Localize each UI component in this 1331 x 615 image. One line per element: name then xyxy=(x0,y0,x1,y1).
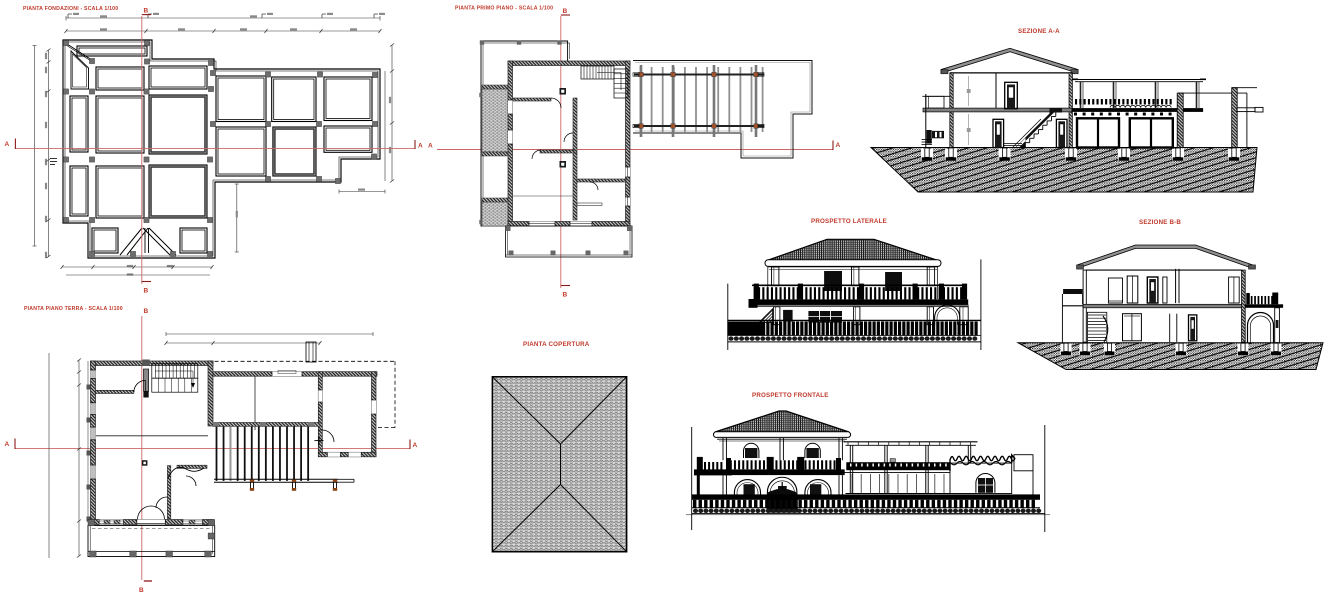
svg-text:B: B xyxy=(144,308,149,315)
svg-text:B: B xyxy=(139,587,144,594)
svg-text:PIANTA PRIMO PIANO - SCALA 1/1: PIANTA PRIMO PIANO - SCALA 1/100 xyxy=(455,6,553,12)
svg-text:PROSPETTO FRONTALE: PROSPETTO FRONTALE xyxy=(752,392,829,399)
svg-text:B: B xyxy=(144,288,149,295)
svg-text:A: A xyxy=(5,441,10,448)
svg-text:A: A xyxy=(428,143,433,150)
svg-text:PIANTA COPERTURA: PIANTA COPERTURA xyxy=(523,341,590,348)
svg-text:B: B xyxy=(563,8,568,15)
svg-text:SEZIONE A-A: SEZIONE A-A xyxy=(1018,28,1060,35)
svg-text:SEZIONE B-B: SEZIONE B-B xyxy=(1139,219,1181,226)
svg-text:A: A xyxy=(5,141,10,148)
svg-text:A: A xyxy=(413,442,418,449)
svg-text:PIANTA FONDAZIONI - SCALA 1/1: PIANTA FONDAZIONI - SCALA 1/100 xyxy=(23,6,118,12)
svg-text:B: B xyxy=(144,8,149,15)
svg-text:B: B xyxy=(563,292,568,299)
svg-text:PIANTA PIANO TERRA - SCALA 1/: PIANTA PIANO TERRA - SCALA 1/100 xyxy=(24,306,123,312)
svg-text:A: A xyxy=(836,142,841,149)
svg-text:PROSPETTO LATERALE: PROSPETTO LATERALE xyxy=(811,218,887,225)
svg-text:A: A xyxy=(418,143,423,150)
